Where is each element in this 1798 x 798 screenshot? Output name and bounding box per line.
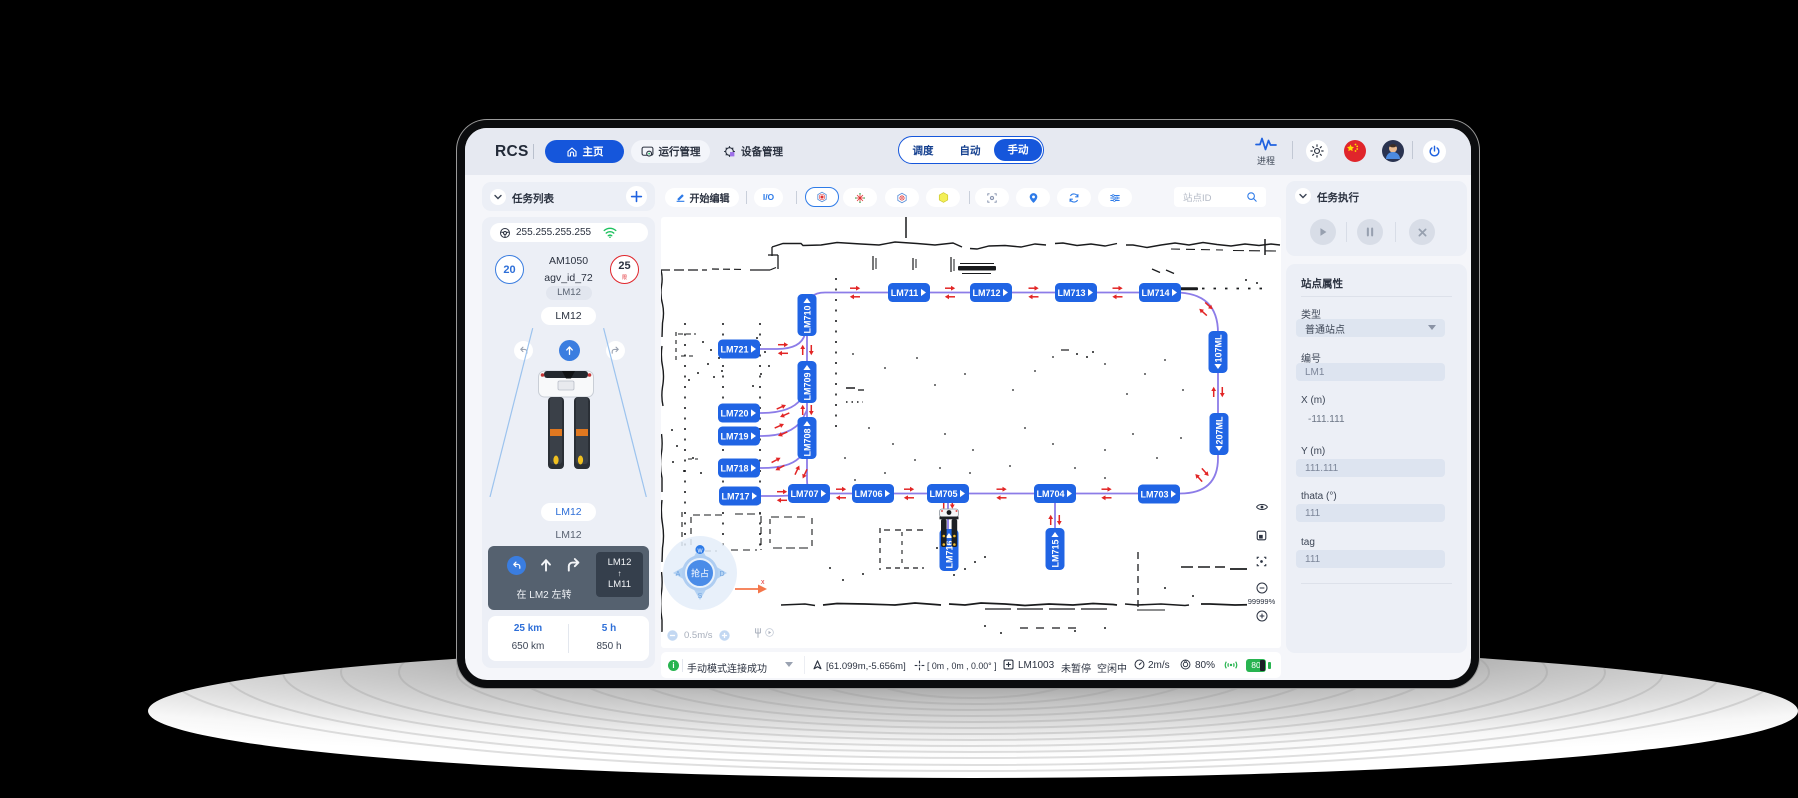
svg-text:LM709: LM709 [802, 372, 812, 400]
svg-text:LM711: LM711 [891, 288, 919, 298]
svg-text:D: D [719, 571, 724, 578]
svg-text:107ML: 107ML [1213, 334, 1223, 363]
svg-text:抢占: 抢占 [691, 568, 709, 579]
svg-text:LM713: LM713 [1057, 288, 1085, 298]
svg-text:LM706: LM706 [854, 489, 882, 499]
svg-text:S: S [698, 593, 703, 600]
svg-text:A: A [676, 571, 681, 578]
svg-text:LM705: LM705 [929, 489, 957, 499]
svg-text:LM719: LM719 [720, 431, 748, 441]
svg-text:LM712: LM712 [972, 288, 1000, 298]
svg-text:LM721: LM721 [720, 344, 748, 354]
svg-text:LM704: LM704 [1036, 489, 1064, 499]
svg-text:LM714: LM714 [1141, 288, 1169, 298]
svg-text:LM718: LM718 [720, 463, 748, 473]
svg-text:207ML: 207ML [1214, 416, 1224, 445]
svg-text:LM710: LM710 [802, 305, 812, 333]
svg-text:LM703: LM703 [1140, 489, 1168, 499]
svg-text:LM720: LM720 [720, 408, 748, 418]
svg-text:LM707: LM707 [790, 489, 818, 499]
svg-text:x: x [761, 579, 765, 586]
svg-text:w: w [696, 547, 703, 554]
svg-text:LM717: LM717 [721, 491, 749, 501]
svg-text:LM715: LM715 [1050, 539, 1060, 567]
svg-text:LM708: LM708 [802, 428, 812, 456]
